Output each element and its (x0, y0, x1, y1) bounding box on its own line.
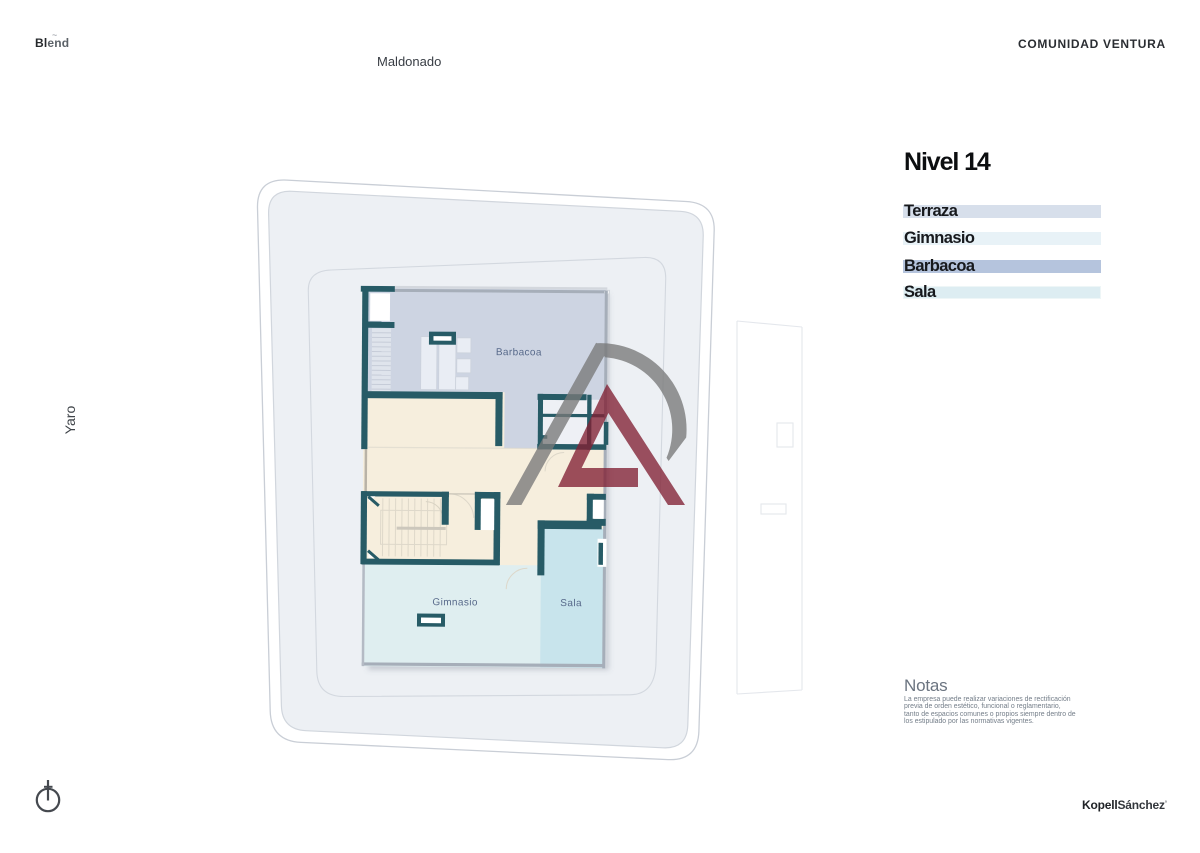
svg-text:Barbacoa: Barbacoa (496, 347, 542, 358)
svg-text:Gimnasio: Gimnasio (432, 597, 478, 608)
svg-text:Sala: Sala (560, 598, 582, 609)
